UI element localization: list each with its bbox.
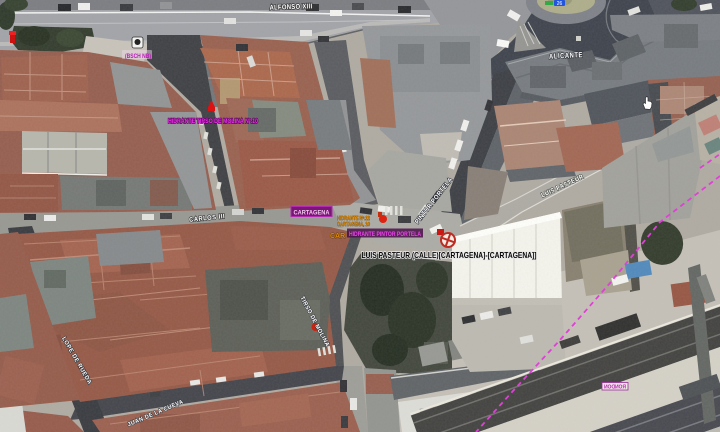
svg-text:CARTAGENA: CARTAGENA (294, 210, 330, 217)
svg-text:26: 26 (557, 1, 563, 7)
svg-text:ALICANTE: ALICANTE (549, 50, 583, 61)
svg-text:CARTAGENA, 10: CARTAGENA, 10 (337, 222, 370, 228)
svg-text:HIDRANTE TIRSO DE MOLINA Nº.10: HIDRANTE TIRSO DE MOLINA Nº.10 (168, 118, 258, 125)
svg-text:CAR: CAR (330, 233, 345, 240)
svg-text:ALFONSO XIII: ALFONSO XIII (269, 3, 312, 11)
svg-text:(BSCH NB): (BSCH NB) (125, 54, 151, 60)
svg-text:RONDON: RONDON (604, 385, 626, 391)
svg-text:HIDRANTE PINTOR PORTELA: HIDRANTE PINTOR PORTELA (349, 232, 422, 238)
svg-text:LUIS PASTEUR (CALLE)[CARTAGENA: LUIS PASTEUR (CALLE)[CARTAGENA]-[CARTAGE… (362, 250, 537, 260)
